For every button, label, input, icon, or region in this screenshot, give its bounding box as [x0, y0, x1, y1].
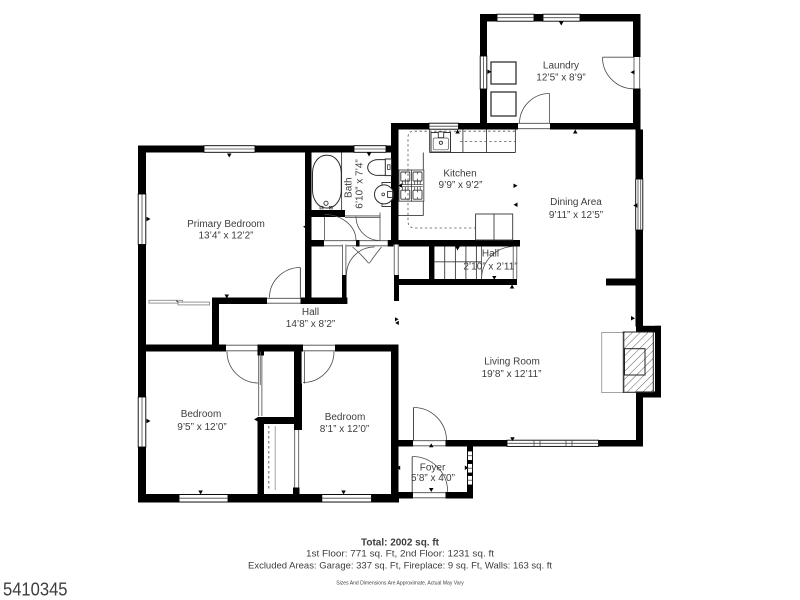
- svg-text:Sizes And Dimensions Are Appro: Sizes And Dimensions Are Approximate, Ac…: [336, 580, 464, 586]
- svg-text:Living Room: Living Room: [484, 357, 540, 368]
- svg-text:2’10” x 2’11”: 2’10” x 2’11”: [463, 262, 517, 273]
- svg-text:Primary Bedroom: Primary Bedroom: [187, 219, 265, 230]
- svg-text:Bath: Bath: [344, 177, 355, 198]
- svg-text:Hall: Hall: [302, 307, 319, 318]
- svg-text:13’4” x 12’2”: 13’4” x 12’2”: [198, 231, 253, 242]
- svg-text:Kitchen: Kitchen: [443, 169, 476, 180]
- svg-text:Dining Area: Dining Area: [550, 197, 602, 208]
- svg-text:Bedroom: Bedroom: [181, 409, 222, 420]
- svg-text:8’1” x 12’0”: 8’1” x 12’0”: [320, 424, 369, 435]
- svg-text:9’9” x 9’2”: 9’9” x 9’2”: [439, 180, 483, 191]
- svg-text:Total: 2002 sq. ft: Total: 2002 sq. ft: [361, 537, 439, 549]
- svg-text:5410345: 5410345: [3, 580, 68, 600]
- svg-text:Foyer: Foyer: [420, 463, 446, 474]
- svg-text:1st Floor: 771 sq. Ft, 2nd Flo: 1st Floor: 771 sq. Ft, 2nd Floor: 1231 s…: [306, 549, 494, 559]
- svg-text:Excluded Areas: Garage: 337 sq: Excluded Areas: Garage: 337 sq. Ft, Fire…: [248, 561, 552, 571]
- svg-text:Hall: Hall: [482, 249, 499, 260]
- svg-text:6’10” x 7’4”: 6’10” x 7’4”: [355, 159, 366, 208]
- svg-text:Bedroom: Bedroom: [325, 412, 366, 423]
- svg-text:9’11” x 12’5”: 9’11” x 12’5”: [549, 210, 603, 221]
- svg-text:9’5” x 12’0”: 9’5” x 12’0”: [177, 422, 226, 433]
- svg-text:12’5” x 8’9”: 12’5” x 8’9”: [536, 73, 585, 84]
- svg-text:14’8” x 8’2”: 14’8” x 8’2”: [286, 319, 335, 330]
- svg-text:5’8” x 4’0”: 5’8” x 4’0”: [411, 473, 455, 484]
- svg-text:Laundry: Laundry: [543, 61, 579, 72]
- svg-text:19’8” x 12’11”: 19’8” x 12’11”: [482, 369, 542, 380]
